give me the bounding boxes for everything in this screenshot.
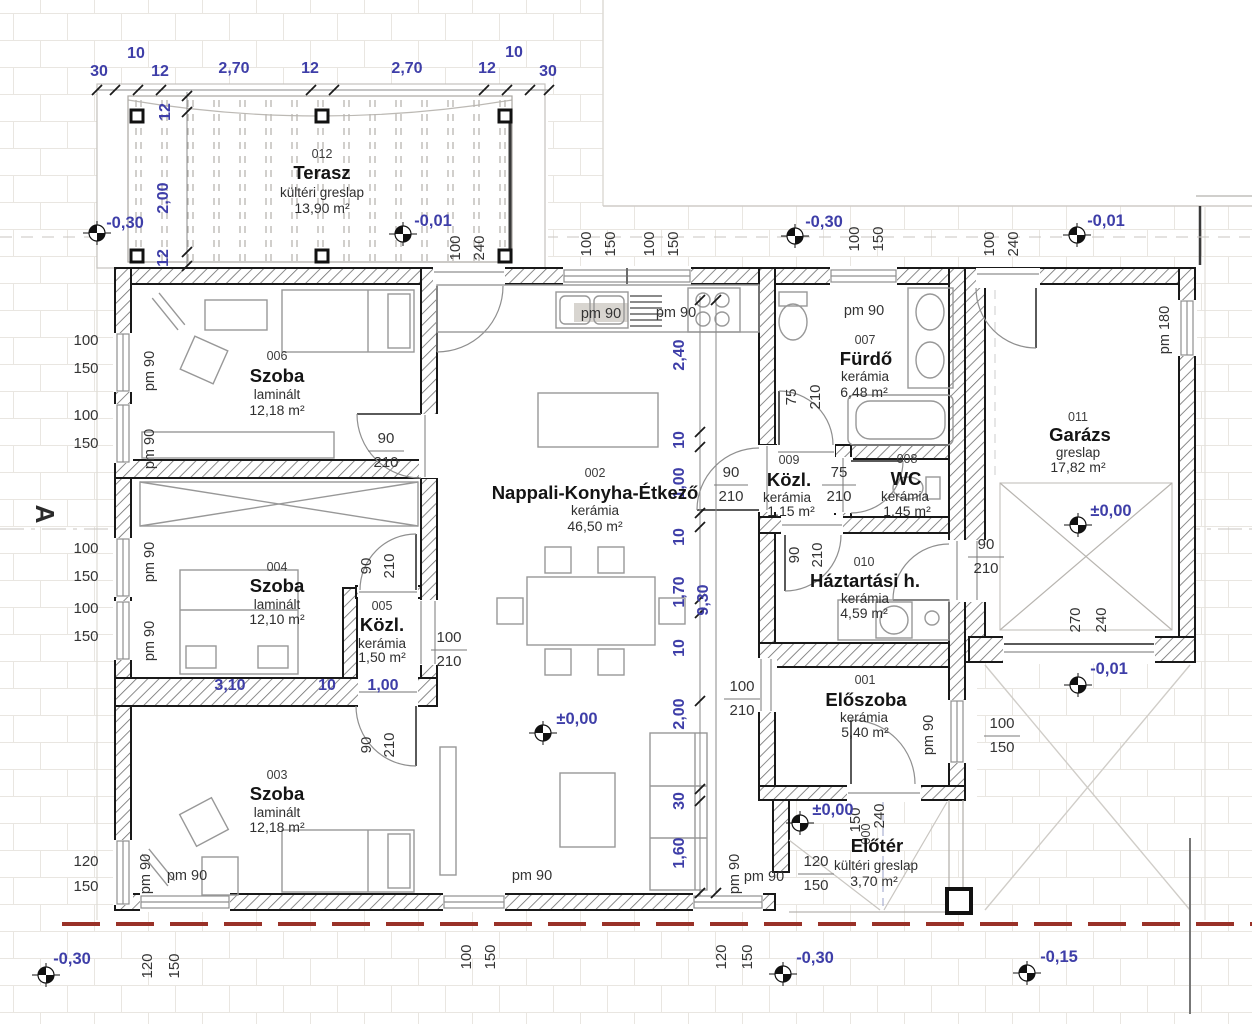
window-eloszoba [947, 700, 967, 763]
dim-label: 210 [718, 488, 743, 505]
dim-label: 12 [478, 60, 496, 77]
room-name: Garázs [1049, 424, 1111, 445]
dim-label: 100 [73, 600, 98, 617]
section-mark-a: A [30, 505, 60, 524]
window-kitchen [563, 266, 691, 286]
room-name: Előszoba [825, 689, 907, 710]
room-number: 005 [372, 599, 393, 613]
room-area: 6,48 m² [840, 384, 888, 400]
elevation-label: -0,01 [414, 212, 452, 230]
terasz-post [316, 250, 328, 262]
room-number: 012 [312, 147, 333, 161]
window [113, 333, 133, 392]
dim-label: 10 [671, 528, 688, 546]
dim-label: 210 [729, 702, 754, 719]
room-material: kerámia [571, 503, 620, 518]
dim-label: 210 [807, 384, 824, 409]
dim-label: 30 [539, 63, 557, 80]
elevation-label: ±0,00 [556, 710, 597, 728]
dim-label: 150 [166, 953, 183, 978]
dim-label: 2,70 [391, 60, 422, 77]
elevation-label: -0,30 [53, 950, 91, 968]
pm-label: pm 90 [142, 542, 158, 582]
dim-label: 100 [989, 715, 1014, 732]
pm-label: pm 90 [844, 303, 884, 319]
dim-label: 30 [90, 63, 108, 80]
room-number: 011 [1068, 410, 1088, 424]
dim-label: 12 [155, 249, 172, 267]
dim-label: 12 [301, 60, 319, 77]
pm-label: pm 180 [1157, 306, 1173, 354]
dim-label: 100 [447, 235, 464, 260]
room-name: Fürdő [840, 348, 892, 369]
dim-label: 100 [458, 944, 475, 969]
room-material: laminált [254, 387, 301, 402]
dim-label: 75 [831, 464, 848, 481]
dim-label: 150 [870, 226, 887, 251]
dim-label: 10 [505, 44, 523, 61]
room-area: 5,40 m² [841, 724, 889, 740]
dim-label: 210 [381, 732, 398, 757]
pm-label: pm 90 [744, 869, 784, 885]
dim-label: 2,70 [218, 60, 249, 77]
room-material: kerámia [841, 369, 890, 384]
elevation-label: -0,01 [1090, 660, 1128, 678]
dim-label: 90 [358, 737, 375, 754]
room-material: kerámia [841, 591, 890, 606]
room-area: 12,18 m² [249, 402, 305, 418]
pm-label: pm 90 [142, 429, 158, 469]
dim-label: 150 [73, 360, 98, 377]
room-name: Előtér [851, 835, 903, 856]
window-bath [830, 266, 897, 286]
room-number: 006 [267, 349, 288, 363]
room-area: 46,50 m² [567, 518, 623, 534]
terasz-post [131, 250, 143, 262]
terasz-post [131, 110, 143, 122]
room-area: 17,82 m² [1050, 459, 1106, 475]
dim-label: 100 [73, 407, 98, 424]
room-number: 009 [779, 453, 800, 467]
dim-label: 100 [846, 226, 863, 251]
dim-label: 120 [803, 853, 828, 870]
dim-label: 100 [436, 629, 461, 646]
dim-label: 150 [73, 628, 98, 645]
dim-label: 1,70 [671, 576, 688, 607]
room-area: 12,10 m² [249, 611, 305, 627]
dim-label: 120 [73, 853, 98, 870]
dim-label: 240 [471, 235, 488, 260]
window [443, 892, 505, 912]
dim-label: 150 [602, 231, 619, 256]
dim-label: 210 [381, 553, 398, 578]
door-garage-gate [1003, 635, 1155, 664]
room-material: laminált [254, 805, 301, 820]
terasz-post [316, 110, 328, 122]
dim-label: 150 [739, 944, 756, 969]
room-material: laminált [254, 597, 301, 612]
dim-label: 90 [723, 464, 740, 481]
pm-label: pm 90 [581, 306, 621, 322]
window [113, 840, 133, 905]
room-name: WC [891, 468, 922, 489]
dim-label: 100 [729, 678, 754, 695]
terasz-post [499, 110, 511, 122]
dim-label: 1,00 [367, 677, 398, 694]
room-number: 007 [855, 333, 876, 347]
room-area: 4,59 m² [840, 605, 888, 621]
pm-label: pm 90 [167, 868, 207, 884]
window-garage [1177, 300, 1197, 356]
room-name: Szoba [250, 365, 305, 386]
pm-label: pm 90 [138, 854, 154, 894]
elevation-label: -0,30 [796, 949, 834, 967]
room-area: 1,45 m² [883, 503, 931, 519]
dim-label: 10 [671, 431, 688, 449]
eloter-post [947, 889, 971, 913]
room-number: 010 [854, 555, 875, 569]
wall-v3 [343, 588, 357, 678]
pm-label: pm 90 [512, 868, 552, 884]
dim-label: 210 [373, 454, 398, 471]
dim-label: 3,10 [214, 677, 245, 694]
dim-label: 9,30 [695, 584, 712, 615]
dim-label: 150 [665, 231, 682, 256]
pm-label: pm 90 [656, 305, 696, 321]
room-area: 1,50 m² [358, 649, 406, 665]
terasz-post [499, 250, 511, 262]
wall-eloter-left [773, 800, 789, 872]
dim-label: 2,40 [671, 339, 688, 370]
dim-label: 210 [809, 542, 826, 567]
room-material: kültéri greslap [834, 858, 918, 873]
elevation-label: -0,30 [106, 214, 144, 232]
dim-label: 12 [151, 63, 169, 80]
window [113, 404, 133, 463]
dim-label: 100 [73, 332, 98, 349]
dim-label: 210 [436, 653, 461, 670]
dim-label: 150 [803, 877, 828, 894]
dim-label: 270 [1067, 607, 1084, 632]
dim-label: 240 [871, 803, 888, 828]
room-name: Háztartási h. [810, 570, 920, 591]
room-material: greslap [1056, 445, 1100, 460]
room-number: 003 [267, 768, 288, 782]
pm-label: pm 90 [921, 715, 937, 755]
wall-garage-left [965, 268, 985, 662]
room-name: Közl. [767, 469, 811, 490]
room-name: Szoba [250, 575, 305, 596]
dim-label: 240 [1005, 231, 1022, 256]
dim-label: 100 [641, 231, 658, 256]
dim-label: 150 [73, 878, 98, 895]
floorplan-sheet: 30 10 12 2,70 12 2,70 12 10 30 12 2,00 1… [0, 0, 1252, 1024]
floorplan-drawing: 30 10 12 2,70 12 2,70 12 10 30 12 2,00 1… [0, 0, 1252, 1024]
elevation-label: ±0,00 [1090, 502, 1131, 520]
room-number: 008 [897, 452, 918, 466]
dim-label: 210 [973, 560, 998, 577]
wall-haztartasi-bottom [759, 643, 965, 667]
elevation-label: ±0,00 [812, 801, 853, 819]
dim-label: 2,00 [671, 698, 688, 729]
dim-label: 150 [989, 739, 1014, 756]
dim-label: 90 [378, 430, 395, 447]
elevation-label: -0,30 [805, 213, 843, 231]
window [113, 601, 133, 660]
pm-label: pm 90 [142, 621, 158, 661]
room-material: kerámia [840, 710, 889, 725]
elevation-label: -0,15 [1040, 948, 1078, 966]
dim-label: 120 [139, 953, 156, 978]
dim-label: 240 [1093, 607, 1110, 632]
elevation-label: -0,01 [1087, 212, 1125, 230]
room-name: Szoba [250, 783, 305, 804]
dim-label: 10 [127, 45, 145, 62]
dim-label: 150 [73, 435, 98, 452]
dim-label: 100 [578, 231, 595, 256]
room-number: 001 [855, 673, 876, 687]
room-area: 1,15 m² [767, 503, 815, 519]
dim-label: 2,00 [155, 182, 172, 213]
room-material: kerámia [881, 489, 930, 504]
pm-label: pm 90 [727, 854, 743, 894]
room-area: 13,90 m² [294, 200, 350, 216]
dim-label: 1,60 [671, 837, 688, 868]
room-name: Terasz [293, 162, 350, 183]
opening-nappali-eloszoba [757, 658, 777, 712]
room-material: kültéri greslap [280, 185, 364, 200]
dim-label: 12 [157, 103, 174, 121]
dim-label: 75 [783, 389, 800, 406]
dim-label: 90 [978, 536, 995, 553]
dim-label: 90 [786, 547, 803, 564]
pm-label: pm 90 [142, 351, 158, 391]
dim-label: 30 [671, 792, 688, 810]
room-number: 004 [267, 560, 288, 574]
dim-label: 150 [482, 944, 499, 969]
room-number: 002 [585, 466, 606, 480]
room-area: 12,18 m² [249, 819, 305, 835]
dim-label: 10 [671, 639, 688, 657]
dim-label: 210 [826, 488, 851, 505]
dim-label: 100 [981, 231, 998, 256]
dim-label: 120 [713, 944, 730, 969]
dim-label: 150 [73, 568, 98, 585]
window [113, 538, 133, 597]
neighbor-plot-blank [603, 0, 1252, 206]
dim-label: 90 [358, 558, 375, 575]
dim-label: 100 [73, 540, 98, 557]
room-area: 3,70 m² [850, 873, 898, 889]
room-name: Nappali-Konyha-Étkező [492, 482, 699, 503]
room-name: Közl. [360, 614, 404, 635]
dim-label: 10 [318, 677, 336, 694]
